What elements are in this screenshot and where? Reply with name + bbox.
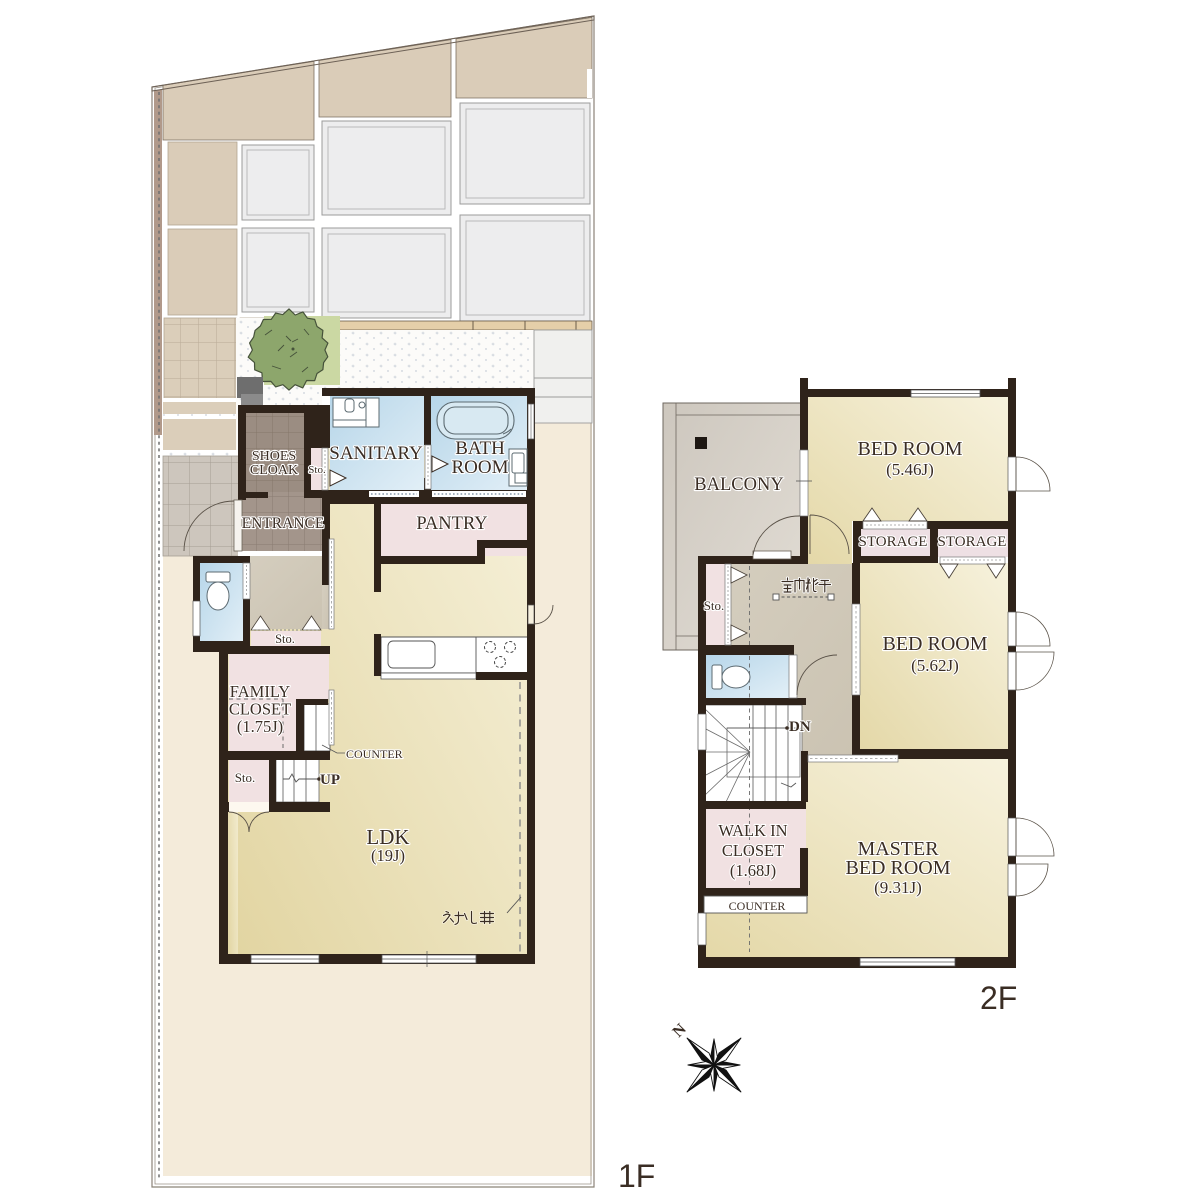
svg-text:(19J): (19J) [371, 846, 405, 865]
svg-text:(1.75J): (1.75J) [237, 717, 283, 736]
svg-text:(5.62J): (5.62J) [911, 656, 959, 675]
svg-text:FAMILY: FAMILY [230, 682, 290, 701]
svg-text:SANITARY: SANITARY [329, 443, 423, 464]
svg-text:COUNTER: COUNTER [729, 899, 786, 913]
svg-text:PANTRY: PANTRY [416, 514, 487, 534]
svg-text:ROOM: ROOM [451, 457, 508, 478]
svg-text:CLOSET: CLOSET [229, 700, 291, 719]
svg-text:1F: 1F [618, 1158, 655, 1194]
svg-text:(5.46J): (5.46J) [886, 460, 934, 479]
svg-text:WALK IN: WALK IN [718, 821, 787, 840]
svg-text:(9.31J): (9.31J) [874, 878, 922, 897]
svg-text:COUNTER: COUNTER [346, 747, 403, 761]
svg-text:BED ROOM: BED ROOM [857, 438, 962, 460]
svg-text:Sto.: Sto. [704, 598, 725, 613]
svg-text:Sto.: Sto. [275, 632, 295, 646]
svg-text:BATH: BATH [455, 438, 505, 459]
svg-text:BED ROOM: BED ROOM [845, 857, 950, 879]
svg-text:ENTRANCE: ENTRANCE [242, 515, 325, 532]
svg-text:STORAGE: STORAGE [859, 534, 928, 550]
svg-text:DN: DN [789, 719, 811, 735]
svg-text:Sto.: Sto. [235, 770, 256, 785]
svg-text:STORAGE: STORAGE [938, 534, 1007, 550]
svg-text:Sto.: Sto. [308, 464, 326, 476]
svg-text:2F: 2F [980, 980, 1017, 1016]
svg-text:BED ROOM: BED ROOM [882, 633, 987, 655]
svg-text:SHOES: SHOES [252, 449, 296, 464]
svg-text:CLOSET: CLOSET [722, 841, 784, 860]
svg-text:UP: UP [320, 772, 340, 788]
svg-text:CLOAK: CLOAK [250, 463, 298, 478]
svg-text:BALCONY: BALCONY [694, 475, 783, 495]
svg-text:(1.68J): (1.68J) [730, 861, 776, 880]
